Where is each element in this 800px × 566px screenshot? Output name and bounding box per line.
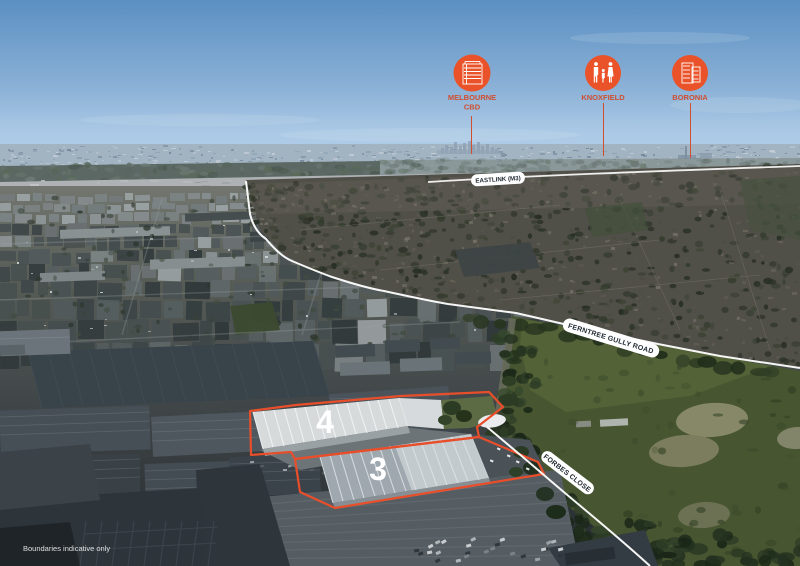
svg-text:Boundaries indicative only: Boundaries indicative only xyxy=(23,544,110,553)
svg-text:3: 3 xyxy=(369,451,387,487)
svg-text:BORONIA: BORONIA xyxy=(672,93,708,102)
svg-text:KNOXFIELD: KNOXFIELD xyxy=(581,93,625,102)
svg-text:MELBOURNE: MELBOURNE xyxy=(448,93,496,102)
svg-text:CBD: CBD xyxy=(464,103,481,112)
svg-text:4: 4 xyxy=(316,404,334,440)
